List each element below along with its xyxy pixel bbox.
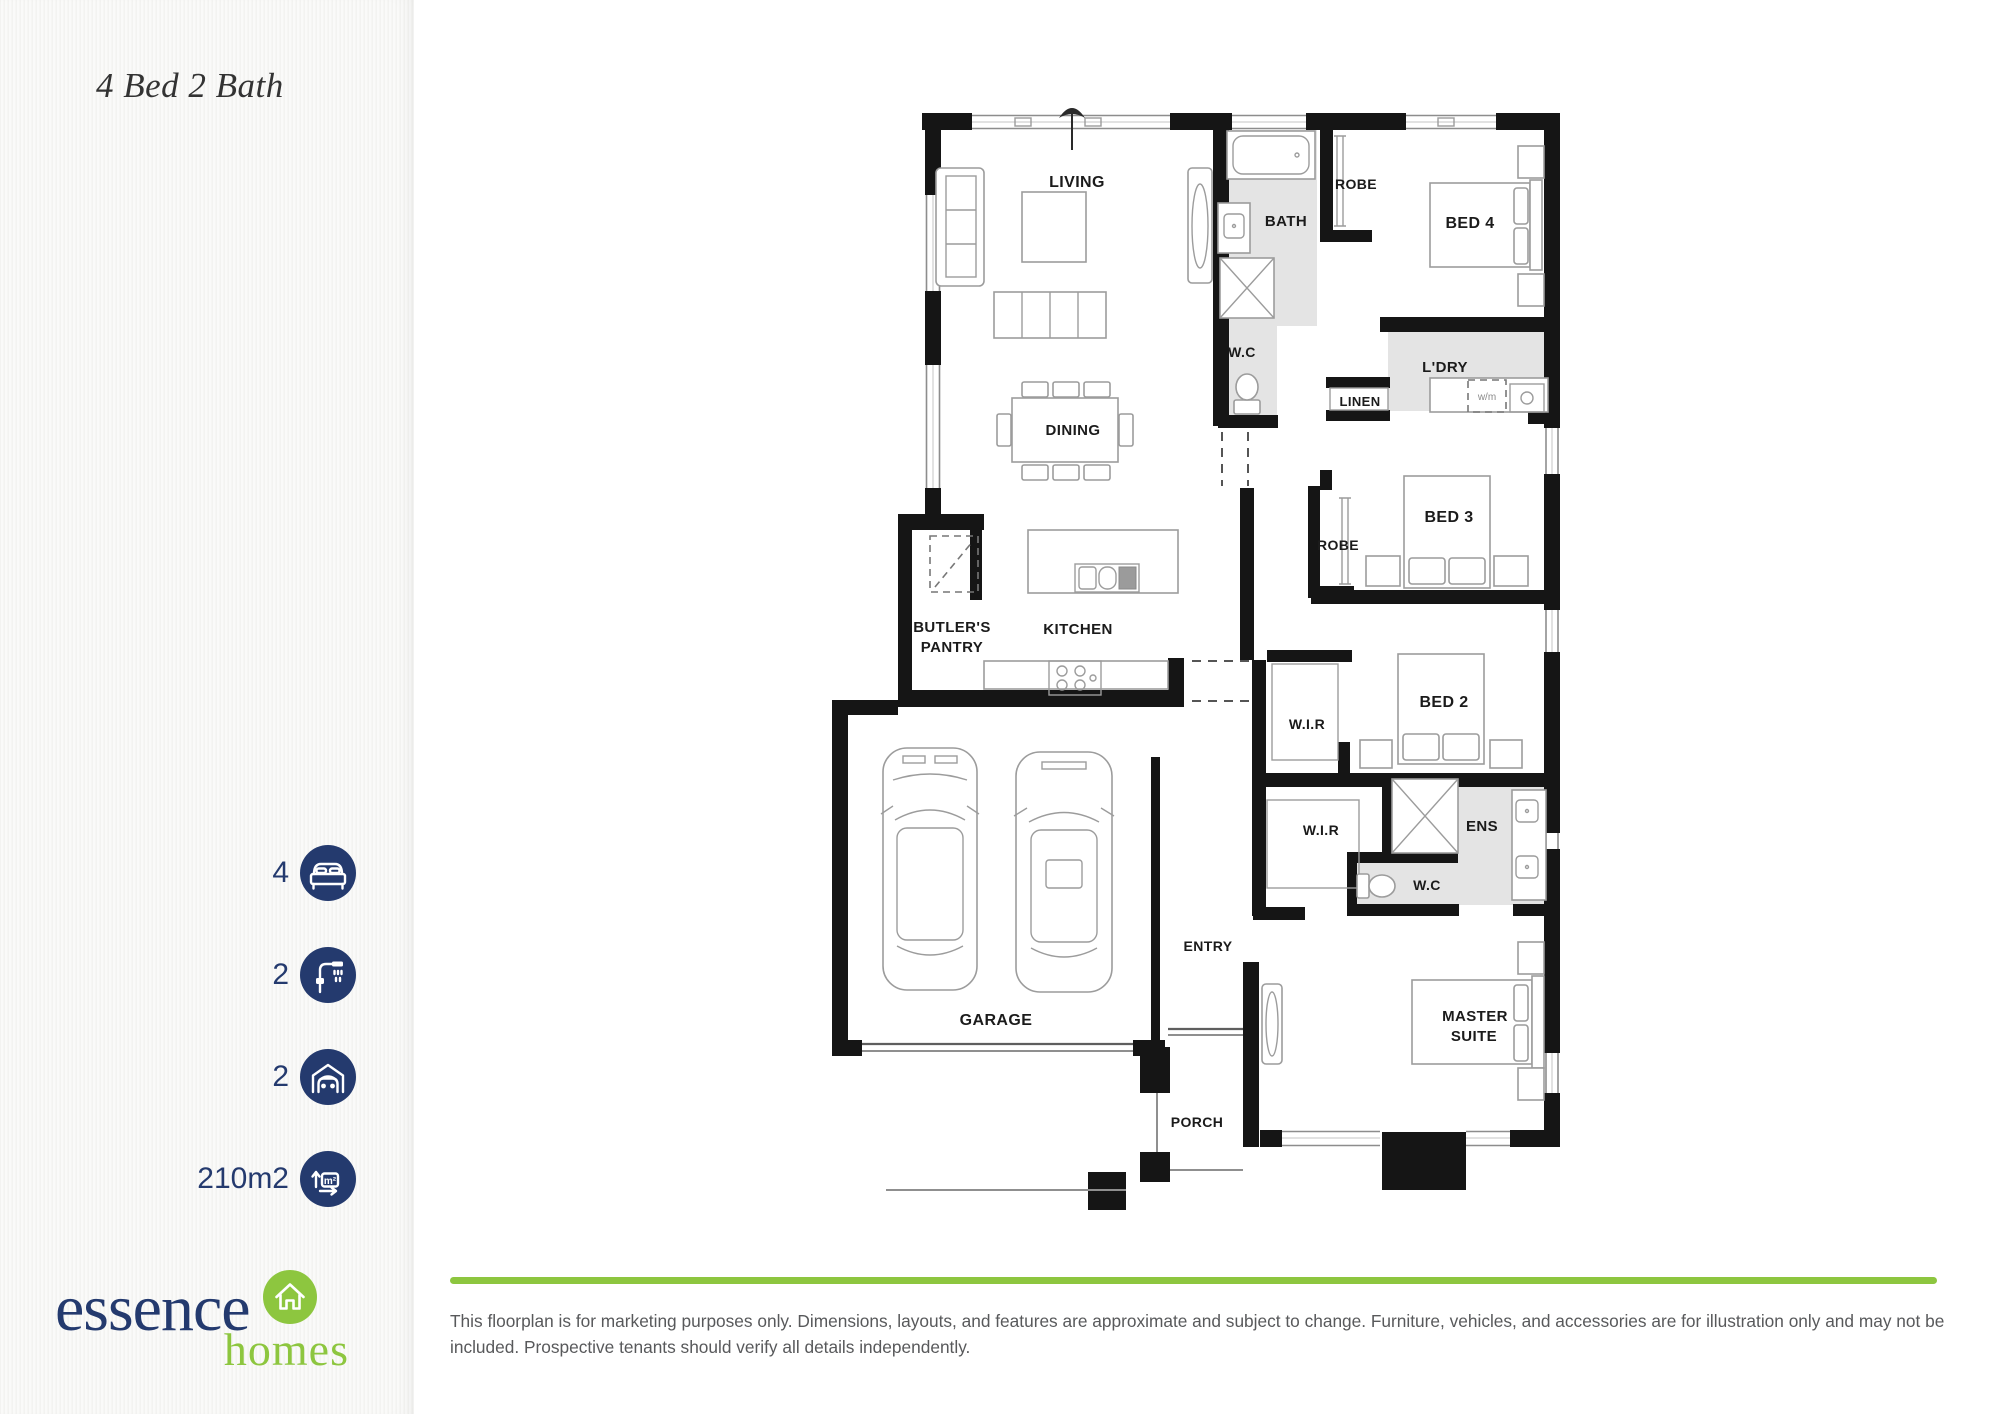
- room-label-garage: GARAGE: [960, 1012, 1033, 1029]
- furniture-bed2: [1272, 654, 1522, 768]
- footer-divider: [450, 1277, 1937, 1284]
- room-label-living: LIVING: [1049, 174, 1105, 191]
- car-left: [881, 748, 979, 990]
- room-label-dining: DINING: [1046, 422, 1101, 439]
- room-label-kitchen: KITCHEN: [1043, 621, 1112, 638]
- floorplan: LIVING BATH ROBE BED 4 W.C L'DRY LINEN D…: [0, 0, 2000, 1414]
- room-label-wir-master: W.I.R: [1303, 822, 1339, 838]
- room-label-wc-bath: W.C: [1228, 344, 1256, 360]
- room-label-master: MASTER: [1442, 1008, 1508, 1025]
- room-label-wc-ensuite: W.C: [1413, 877, 1441, 893]
- room-label-bed4: BED 4: [1445, 215, 1494, 232]
- room-label-laundry: L'DRY: [1422, 359, 1468, 376]
- room-label-entry: ENTRY: [1184, 938, 1233, 954]
- porch-edges: [886, 1029, 1243, 1190]
- room-label-butlers: BUTLER'S: [913, 619, 991, 636]
- room-label-wir-bed2: W.I.R: [1289, 716, 1325, 732]
- room-label-porch: PORCH: [1171, 1114, 1224, 1130]
- furniture-bed3: [1339, 476, 1528, 588]
- room-label-robe-bed3: ROBE: [1317, 537, 1359, 553]
- furniture-living: [936, 168, 1212, 338]
- disclaimer-text: This floorplan is for marketing purposes…: [450, 1309, 1955, 1360]
- room-label-linen: LINEN: [1340, 394, 1381, 409]
- room-label-bed3: BED 3: [1424, 509, 1473, 526]
- furniture-kitchen: [930, 530, 1178, 695]
- room-label-robe-bed4: ROBE: [1335, 176, 1377, 192]
- room-label-ensuite: ENS: [1466, 818, 1498, 835]
- car-right: [1014, 752, 1114, 992]
- room-label-pantry: PANTRY: [921, 639, 983, 656]
- washing-machine-label: w/m: [1477, 392, 1496, 403]
- room-label-bath: BATH: [1265, 213, 1307, 230]
- room-label-bed2: BED 2: [1419, 694, 1468, 711]
- room-label-suite: SUITE: [1451, 1028, 1497, 1045]
